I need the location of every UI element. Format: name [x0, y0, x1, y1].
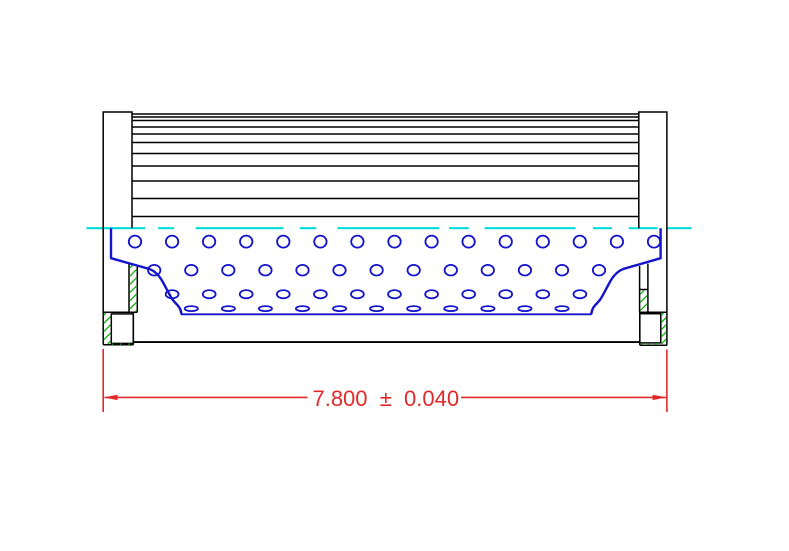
- svg-text:7.800 ± 0.040: 7.800 ± 0.040: [312, 386, 459, 411]
